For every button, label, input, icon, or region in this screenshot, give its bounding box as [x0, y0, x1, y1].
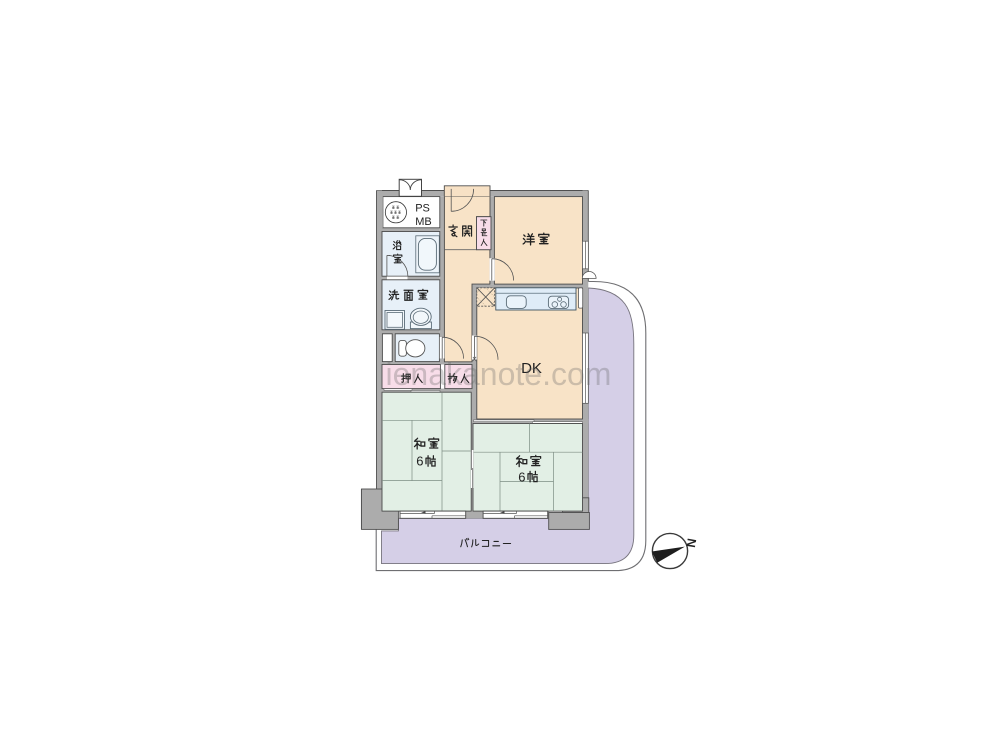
svg-text:PS: PS	[415, 202, 430, 214]
svg-text:ienakanote.com: ienakanote.com	[386, 356, 612, 392]
svg-text:MB: MB	[415, 216, 432, 228]
svg-text:6: 6	[518, 469, 525, 484]
svg-text:6: 6	[416, 454, 423, 469]
